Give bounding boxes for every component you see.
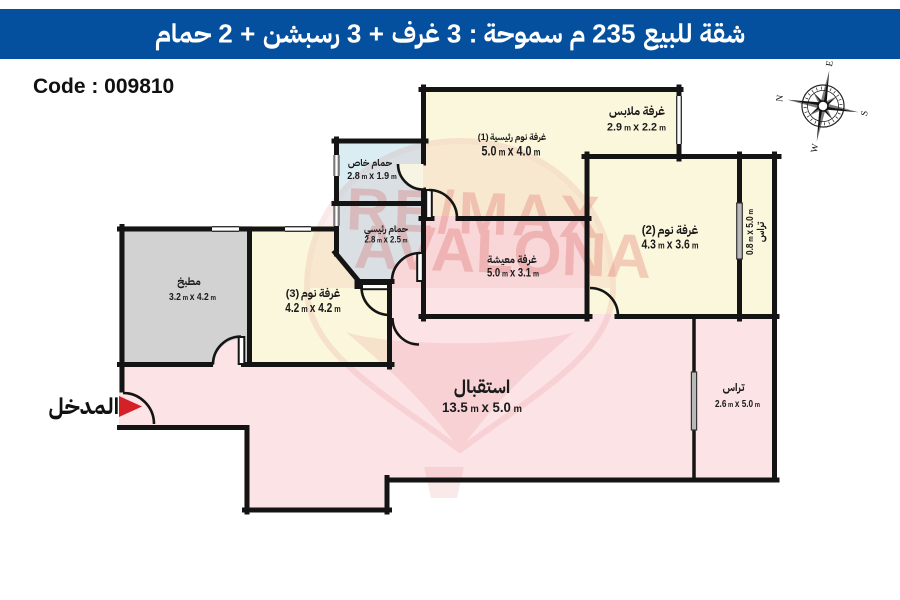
svg-text:(3): (3) (286, 288, 300, 300)
svg-text:AVALONA: AVALONA (353, 213, 653, 292)
svg-text:+: + (369, 19, 384, 49)
svg-text:4.3 m x 3.6 m: 4.3 m x 3.6 m (642, 237, 699, 252)
svg-text:N: N (775, 94, 786, 103)
svg-text:(2): (2) (642, 225, 656, 237)
svg-text::: : (469, 19, 478, 49)
svg-text:3.2 m x 4.2 m: 3.2 m x 4.2 m (169, 291, 216, 303)
svg-text:4.2 m x 4.2 m: 4.2 m x 4.2 m (285, 301, 341, 315)
svg-text:Code : 009810: Code : 009810 (33, 75, 174, 98)
svg-text:235: 235 (592, 19, 635, 49)
svg-text:3: 3 (347, 19, 361, 49)
svg-text:13.5 m x 5.0 m: 13.5 m x 5.0 m (442, 400, 522, 415)
svg-text:E: E (825, 60, 836, 68)
svg-text:S: S (860, 110, 871, 117)
svg-text:3: 3 (447, 19, 461, 49)
svg-text:2.8 m x 1.9 m: 2.8 m x 1.9 m (347, 170, 397, 182)
svg-text:+: + (240, 19, 255, 49)
svg-text:(1): (1) (478, 132, 489, 142)
svg-text:2.9 m x 2.2 m: 2.9 m x 2.2 m (607, 122, 666, 134)
svg-text:2.6 m x 5.0 m: 2.6 m x 5.0 m (715, 399, 760, 410)
svg-text:0.8 m x 5.0 m: 0.8 m x 5.0 m (745, 209, 756, 255)
svg-text:2: 2 (218, 19, 232, 49)
svg-text:W: W (810, 143, 821, 154)
svg-text:5.0 m x 3.1 m: 5.0 m x 3.1 m (487, 266, 539, 280)
